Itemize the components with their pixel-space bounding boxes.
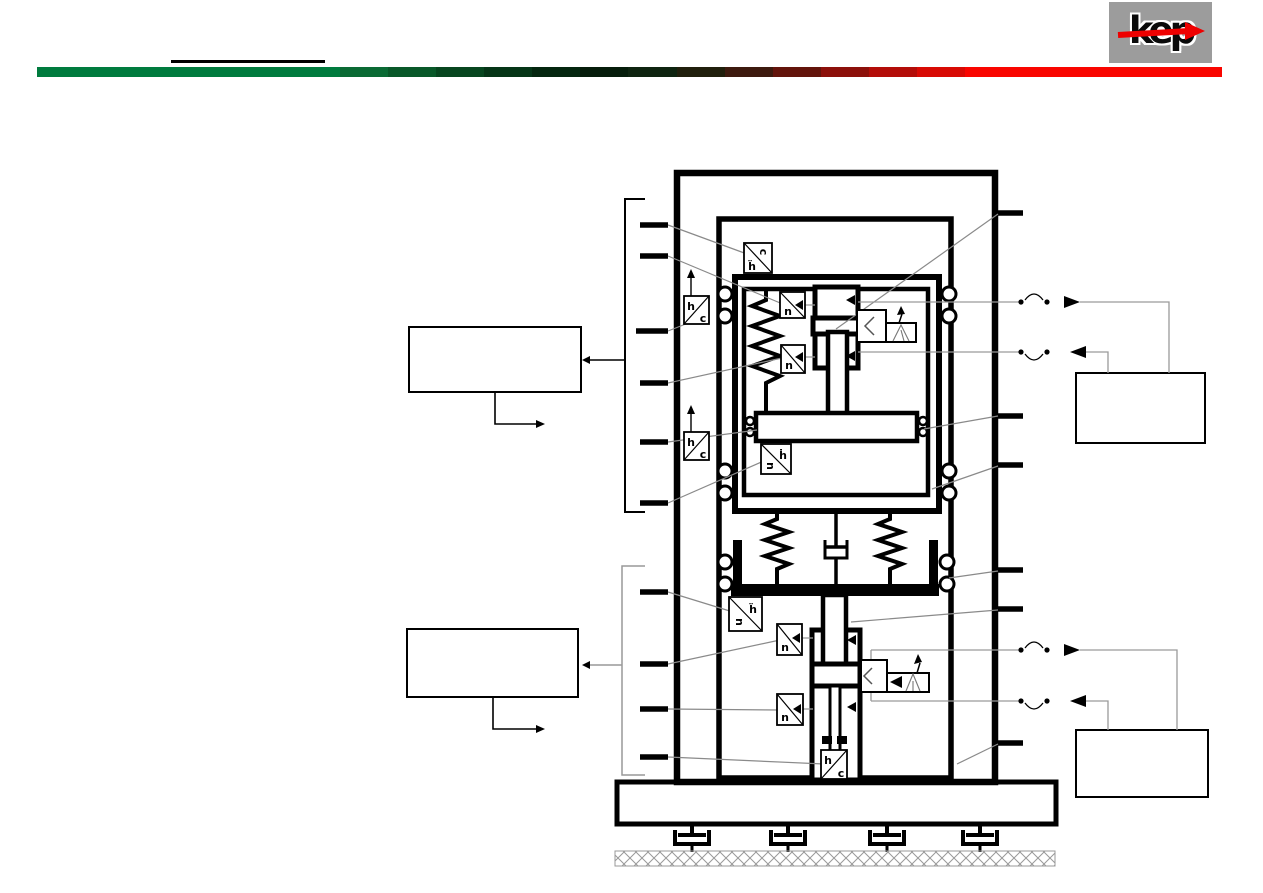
- sensor-cup-accel: ḧ u: [729, 597, 762, 631]
- sensor-label: n: [781, 711, 789, 724]
- sensor-label: h: [687, 300, 695, 313]
- roller: [718, 287, 732, 301]
- link-out-upper: [1018, 294, 1080, 308]
- lower-inner-rod: [830, 686, 840, 756]
- sensor-label: h: [824, 754, 832, 767]
- foot-damper: [870, 824, 904, 852]
- roller: [940, 555, 954, 569]
- foot-damper: [771, 824, 805, 852]
- arrow-left-icon: [1070, 695, 1086, 707]
- roller: [940, 577, 954, 591]
- sensor-rpm-lower-2: n: [777, 694, 803, 725]
- sensor-label: c: [838, 767, 845, 780]
- link-in-lower: [1018, 695, 1086, 709]
- arrow-up-icon: [914, 654, 922, 664]
- roller: [919, 417, 927, 425]
- link-in-upper: [1018, 346, 1086, 360]
- suspension-damper: [825, 513, 847, 584]
- upper-hydraulic-cylinder: [813, 287, 859, 414]
- sensor-label: c: [700, 448, 707, 461]
- roller: [718, 577, 732, 591]
- sensor-label: ḧ: [749, 602, 757, 616]
- sensor-bottom-pos: h c: [821, 750, 847, 780]
- base-plate: [617, 782, 1056, 824]
- arrow-right-icon: [1064, 644, 1080, 656]
- roller: [746, 417, 754, 425]
- sensor-guide-upper: h c: [684, 269, 709, 325]
- sensor-car-accel: c ḧ: [744, 243, 772, 273]
- leader: [668, 640, 780, 664]
- slide: kep: [0, 0, 1263, 893]
- leader: [668, 757, 824, 764]
- sensor-label: u: [732, 618, 745, 626]
- left-callout-ticks: [636, 225, 668, 757]
- roller: [746, 428, 754, 436]
- ground-hatch: [615, 851, 1055, 866]
- sensor-label: h: [687, 436, 695, 449]
- arrow-left-icon: [1070, 346, 1086, 358]
- arrow-right-icon: [1064, 296, 1080, 308]
- suspension-spring-left: [765, 513, 789, 584]
- annotation-box-upper-right: [1076, 373, 1205, 443]
- test-tower-schematic: c ḧ h c n: [0, 0, 1263, 893]
- sensor-platform-vel: ḣ u: [761, 444, 791, 474]
- left-lower-callout-bracket: [622, 566, 645, 775]
- leader: [949, 571, 998, 578]
- roller: [942, 464, 956, 478]
- roller: [718, 486, 732, 500]
- foot-damper: [675, 824, 709, 852]
- arrow-up-icon: [687, 269, 695, 278]
- roller: [718, 309, 732, 323]
- sensor-label: n: [785, 359, 793, 372]
- annotation-box-lower-left: [407, 629, 578, 697]
- structure: [407, 173, 1208, 852]
- signal-link-symbols: [1018, 294, 1086, 709]
- sensor-rpm-lower-1: n: [777, 624, 802, 655]
- annotation-arrows: [493, 356, 625, 733]
- left-upper-callout-bracket: [625, 199, 645, 512]
- upper-piston-rod: [828, 332, 847, 414]
- arrow-up-icon: [897, 306, 905, 315]
- lower-piston-rod: [823, 595, 846, 664]
- upper-servo-valve: [857, 306, 916, 342]
- link-out-lower: [1018, 642, 1080, 656]
- sensor-label: n: [781, 641, 789, 654]
- sensor-rpm-upper-1: n: [780, 292, 805, 318]
- lower-servo-valve: [861, 654, 929, 692]
- leader: [851, 610, 998, 622]
- right-callout-ticks: [998, 213, 1023, 743]
- sensor-label: c: [700, 312, 707, 325]
- sensor-label: c: [757, 249, 770, 256]
- suspension-spring-right: [878, 513, 902, 584]
- arrow-up-icon: [687, 405, 695, 414]
- leader: [668, 709, 780, 710]
- cabin-spring: [752, 291, 780, 413]
- sensor-label: n: [784, 305, 792, 318]
- sensor-label: ḧ: [748, 259, 756, 273]
- sensor-guide-lower: h c: [684, 405, 709, 461]
- sensor-label: u: [763, 462, 776, 470]
- roller: [942, 287, 956, 301]
- sensor-rpm-upper-2: n: [781, 345, 805, 373]
- roller: [942, 309, 956, 323]
- leader: [924, 416, 998, 429]
- base-isolation-feet: [675, 824, 997, 852]
- annotation-box-upper-left: [409, 327, 581, 392]
- annotation-box-lower-right: [1076, 730, 1208, 797]
- roller: [718, 555, 732, 569]
- roller: [942, 486, 956, 500]
- cabin-platform: [756, 413, 917, 441]
- foot-damper: [963, 824, 997, 852]
- sensor-label: ḣ: [779, 449, 787, 462]
